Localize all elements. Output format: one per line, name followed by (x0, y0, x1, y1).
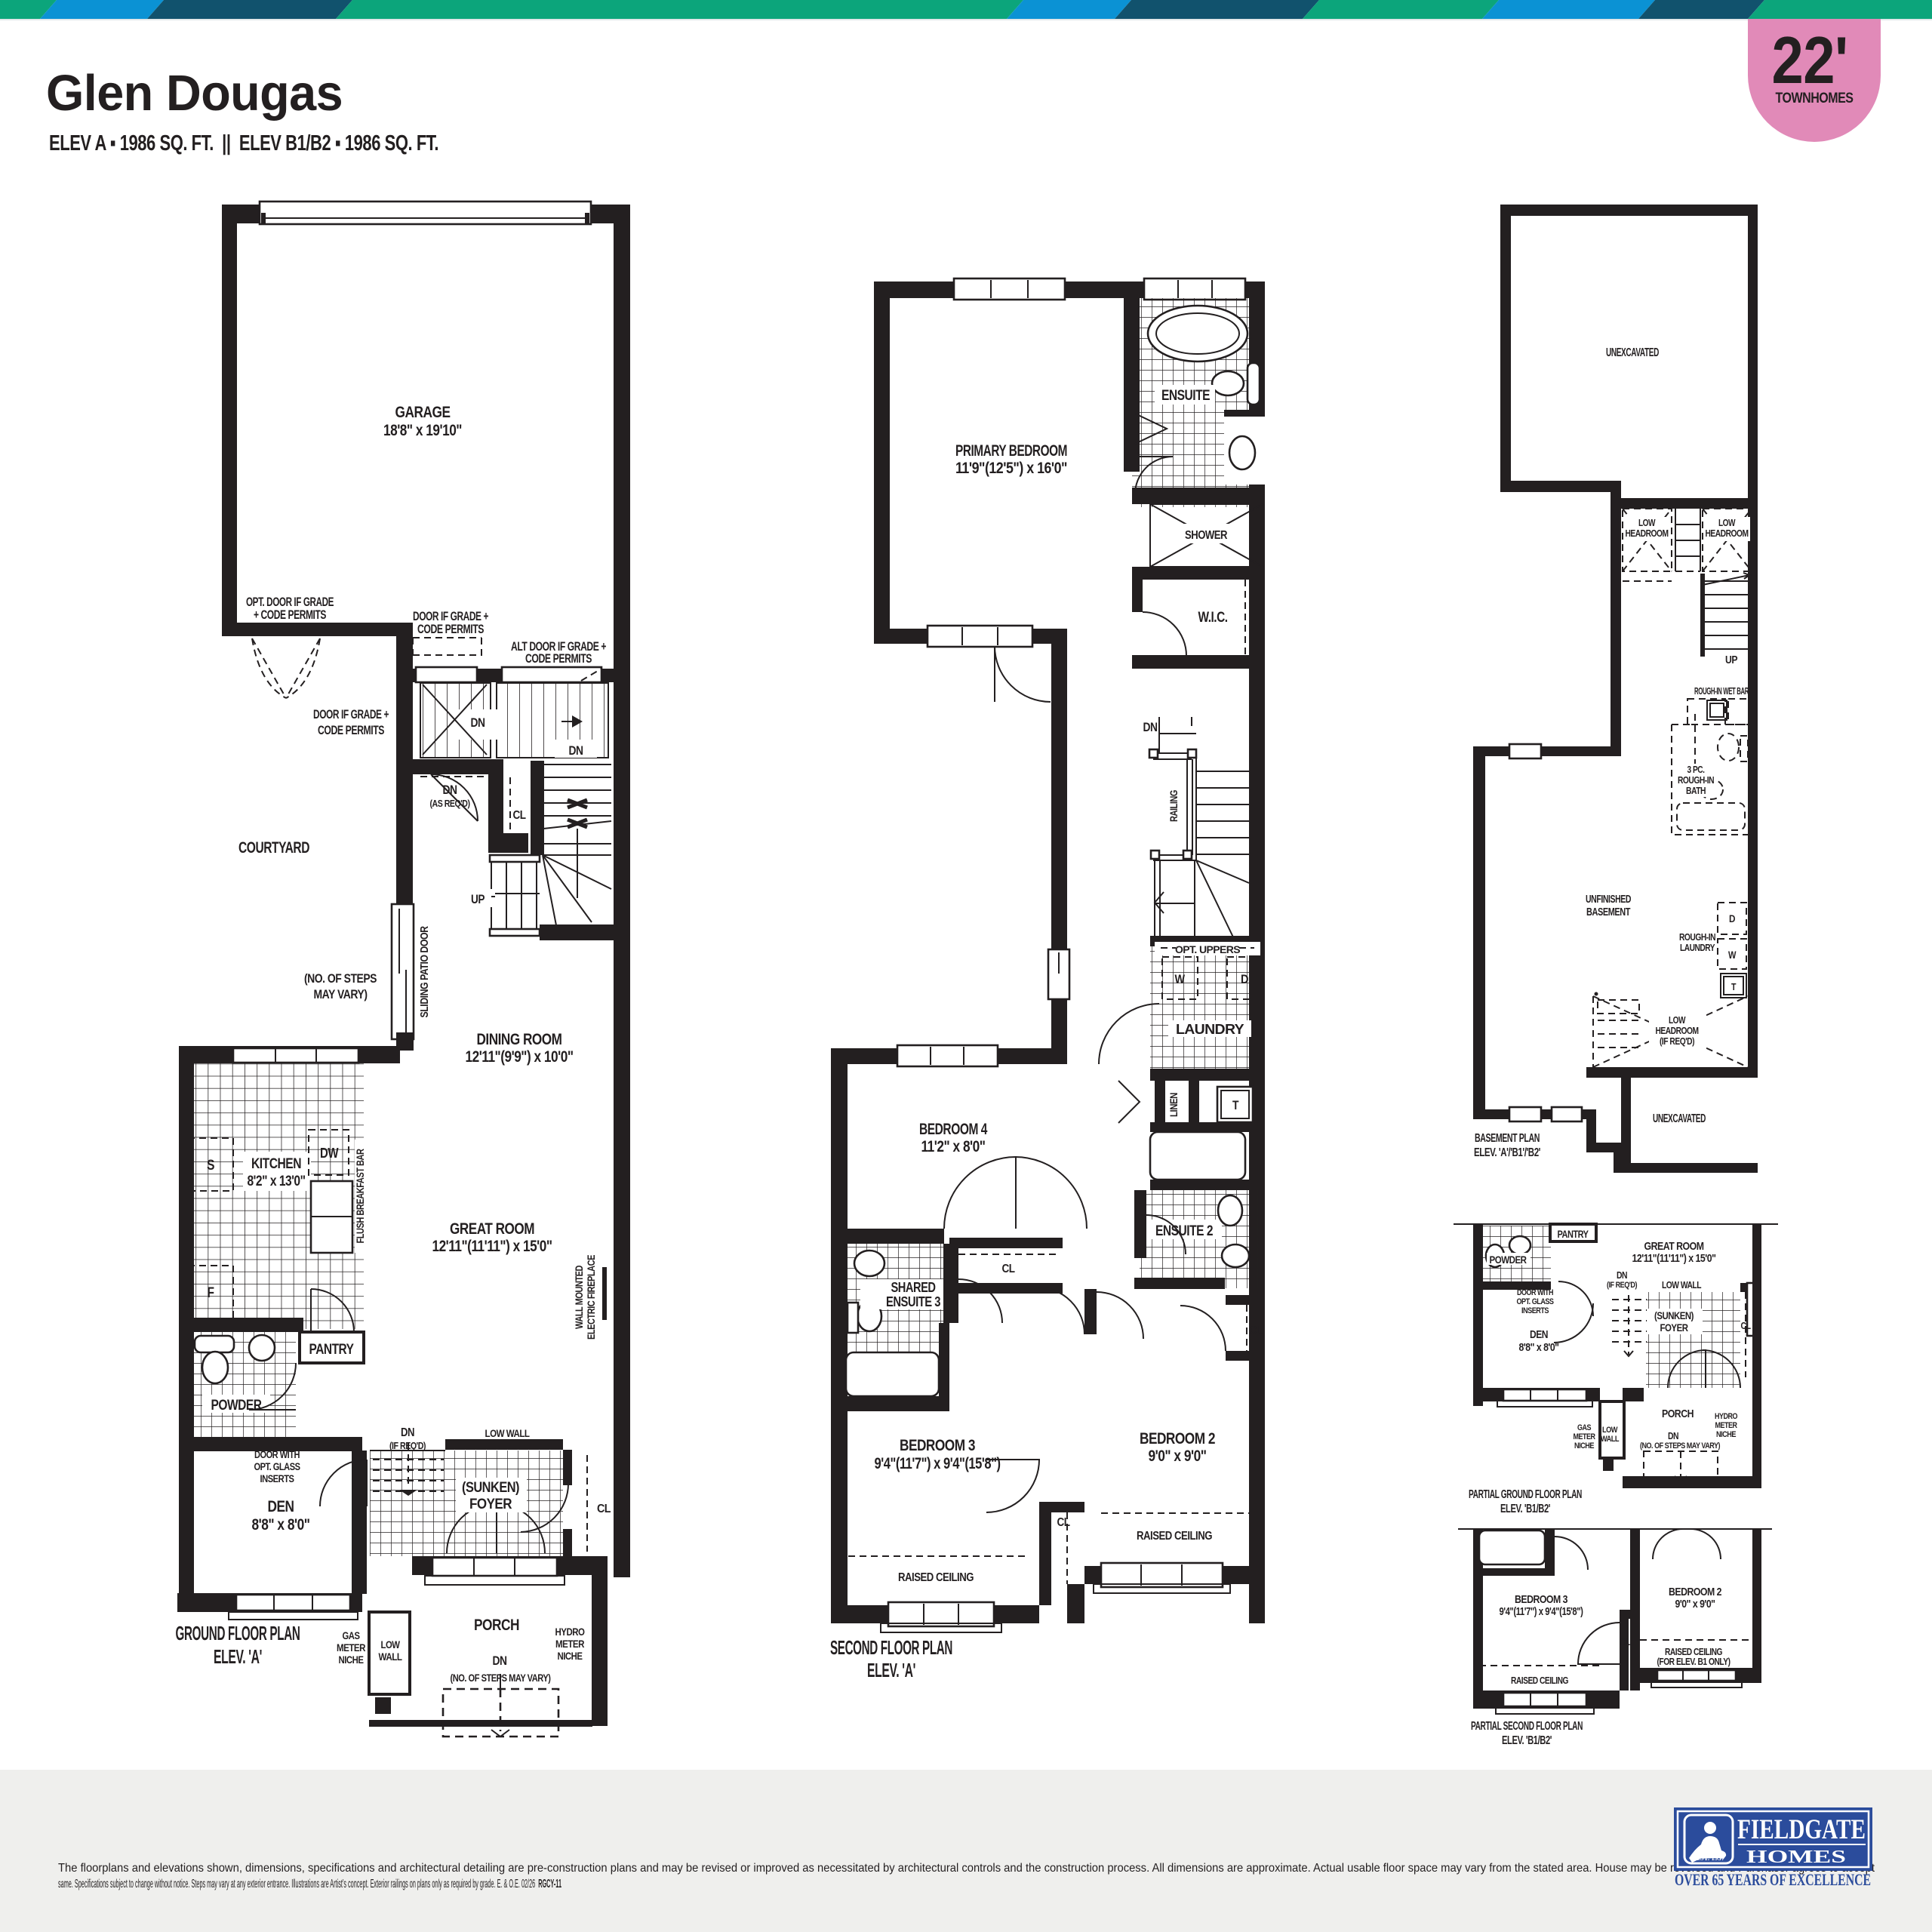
svg-text:F: F (208, 1285, 214, 1301)
svg-text:LOW WALL: LOW WALL (1662, 1280, 1702, 1291)
svg-text:DEN: DEN (268, 1498, 294, 1515)
svg-text:9'0" x 9'0": 9'0" x 9'0" (1675, 1598, 1715, 1611)
svg-text:CL: CL (513, 809, 527, 822)
svg-text:D: D (1729, 912, 1735, 924)
svg-text:BEDROOM 3: BEDROOM 3 (1515, 1593, 1567, 1606)
svg-text:RAISED CEILING: RAISED CEILING (1665, 1647, 1722, 1657)
svg-text:POWDER: POWDER (211, 1398, 263, 1414)
svg-text:HOMES: HOMES (1746, 1847, 1846, 1867)
svg-text:EST. 1957: EST. 1957 (1696, 1854, 1725, 1862)
svg-text:S: S (207, 1158, 214, 1174)
svg-text:FLUSH BREAKFAST BAR: FLUSH BREAKFAST BAR (355, 1149, 366, 1244)
svg-text:SECOND FLOOR PLAN: SECOND FLOOR PLAN (830, 1636, 952, 1659)
svg-text:UNEXCAVATED: UNEXCAVATED (1653, 1112, 1706, 1125)
svg-text:PORCH: PORCH (474, 1617, 519, 1634)
svg-text:TOWNHOMES: TOWNHOMES (1776, 91, 1854, 106)
svg-text:GAS: GAS (1577, 1423, 1591, 1432)
svg-text:BASEMENT PLAN: BASEMENT PLAN (1475, 1132, 1540, 1145)
svg-text:(FOR ELEV. B1 ONLY): (FOR ELEV. B1 ONLY) (1657, 1657, 1730, 1667)
svg-text:OPT. UPPERS: OPT. UPPERS (1175, 943, 1240, 955)
svg-text:DN: DN (1143, 720, 1158, 734)
svg-text:BEDROOM 2: BEDROOM 2 (1140, 1430, 1215, 1447)
svg-text:PORCH: PORCH (1662, 1407, 1694, 1420)
svg-text:PRIMARY BEDROOM: PRIMARY BEDROOM (955, 442, 1067, 460)
svg-text:LOW: LOW (1669, 1015, 1686, 1026)
svg-text:GREAT ROOM: GREAT ROOM (1644, 1240, 1704, 1253)
svg-text:(AS REQ'D): (AS REQ'D) (430, 798, 470, 809)
svg-text:LOW: LOW (1638, 518, 1656, 528)
svg-text:BEDROOM 4: BEDROOM 4 (919, 1121, 988, 1138)
svg-text:ROUGH-IN: ROUGH-IN (1679, 932, 1715, 943)
svg-text:BATH: BATH (1686, 786, 1706, 796)
svg-text:Glen Dougas: Glen Dougas (46, 65, 343, 122)
svg-text:RAISED CEILING: RAISED CEILING (898, 1571, 974, 1584)
svg-text:WALL: WALL (1601, 1435, 1620, 1444)
svg-text:CL: CL (1002, 1263, 1016, 1275)
svg-text:CL: CL (1250, 1324, 1263, 1337)
svg-text:CODE PERMITS: CODE PERMITS (318, 723, 384, 737)
svg-text:(SUNKEN): (SUNKEN) (1654, 1309, 1694, 1321)
svg-text:DN: DN (1617, 1270, 1627, 1281)
svg-text:ENSUITE: ENSUITE (1161, 388, 1210, 404)
svg-text:LOW: LOW (1718, 518, 1736, 528)
svg-text:9'4"(11'7") x 9'4"(15'8"): 9'4"(11'7") x 9'4"(15'8") (1500, 1605, 1583, 1618)
svg-text:same. Specifications subject t: same. Specifications subject to change w… (58, 1878, 561, 1890)
svg-text:PANTRY: PANTRY (309, 1342, 355, 1358)
svg-text:LOW: LOW (381, 1638, 401, 1651)
svg-text:DEN: DEN (1530, 1328, 1548, 1341)
svg-text:UNEXCAVATED: UNEXCAVATED (1606, 346, 1659, 359)
svg-text:NICHE: NICHE (339, 1654, 364, 1666)
svg-text:HEADROOM: HEADROOM (1626, 528, 1669, 539)
svg-text:ELEV. 'A': ELEV. 'A' (214, 1645, 262, 1668)
svg-text:3 PC.: 3 PC. (1687, 764, 1705, 775)
svg-text:ENSUITE 3: ENSUITE 3 (886, 1294, 940, 1309)
svg-text:22': 22' (1772, 23, 1848, 97)
svg-text:METER: METER (337, 1641, 365, 1654)
svg-text:8'2" x 13'0": 8'2" x 13'0" (248, 1174, 306, 1189)
svg-text:CL: CL (1057, 1516, 1071, 1529)
svg-text:The floorplans and elevations: The floorplans and elevations shown, dim… (58, 1862, 1875, 1875)
svg-text:ROUGH-IN: ROUGH-IN (1678, 775, 1714, 786)
svg-text:ELECTRIC FIREPLACE: ELECTRIC FIREPLACE (586, 1255, 597, 1340)
svg-text:GREAT ROOM: GREAT ROOM (450, 1220, 534, 1238)
svg-text:(IF REQ'D): (IF REQ'D) (1660, 1036, 1694, 1047)
svg-text:INSERTS: INSERTS (1521, 1306, 1549, 1315)
svg-text:ELEV. 'B1/B2': ELEV. 'B1/B2' (1500, 1503, 1550, 1515)
svg-text:GARAGE: GARAGE (395, 404, 451, 421)
svg-text:FOYER: FOYER (469, 1497, 512, 1512)
svg-text:DN: DN (569, 743, 583, 758)
svg-text:11'9"(12'5") x 16'0": 11'9"(12'5") x 16'0" (955, 460, 1067, 477)
svg-text:OPT. GLASS: OPT. GLASS (254, 1461, 300, 1472)
svg-text:RAISED CEILING: RAISED CEILING (1137, 1530, 1212, 1543)
svg-text:W: W (1728, 949, 1737, 961)
svg-text:CODE PERMITS: CODE PERMITS (525, 651, 592, 666)
svg-text:RAISED CEILING: RAISED CEILING (1511, 1675, 1568, 1686)
svg-text:ROUGH-IN WET BAR: ROUGH-IN WET BAR (1694, 686, 1749, 697)
svg-text:DINING ROOM: DINING ROOM (477, 1031, 562, 1048)
svg-text:METER: METER (1715, 1421, 1738, 1430)
svg-text:NICHE: NICHE (1574, 1441, 1594, 1451)
svg-text:SHOWER: SHOWER (1185, 529, 1228, 542)
svg-text:GAS: GAS (343, 1629, 360, 1641)
svg-text:CL: CL (1741, 1321, 1752, 1331)
svg-text:W.I.C.: W.I.C. (1198, 610, 1228, 626)
svg-text:DW: DW (320, 1146, 339, 1161)
svg-text:HYDRO: HYDRO (1715, 1412, 1738, 1421)
svg-text:KITCHEN: KITCHEN (251, 1156, 301, 1172)
svg-text:DN: DN (493, 1654, 507, 1668)
svg-text:COURTYARD: COURTYARD (238, 839, 309, 857)
svg-text:FIELDGATE: FIELDGATE (1737, 1814, 1866, 1845)
svg-text:T: T (1232, 1098, 1239, 1112)
svg-text:D: D (1241, 972, 1248, 986)
svg-text:(IF REQ'D): (IF REQ'D) (1607, 1281, 1638, 1290)
svg-text:12'11"(11'11") x 15'0": 12'11"(11'11") x 15'0" (1632, 1252, 1716, 1265)
svg-text:HEADROOM: HEADROOM (1656, 1026, 1699, 1036)
svg-text:UP: UP (471, 892, 485, 906)
svg-text:8'8" x 8'0": 8'8" x 8'0" (252, 1516, 310, 1534)
svg-text:LINEN: LINEN (1168, 1093, 1180, 1117)
svg-text:POWDER: POWDER (1490, 1254, 1527, 1266)
svg-text:ELEV. 'B1/B2': ELEV. 'B1/B2' (1502, 1734, 1552, 1747)
svg-text:DOOR WITH: DOOR WITH (254, 1449, 300, 1460)
svg-text:LAUNDRY: LAUNDRY (1680, 943, 1715, 953)
svg-text:LOW: LOW (1602, 1426, 1618, 1435)
svg-text:BEDROOM 2: BEDROOM 2 (1669, 1586, 1721, 1598)
svg-text:18'8" x 19'10": 18'8" x 19'10" (383, 422, 462, 439)
svg-text:ENSUITE 2: ENSUITE 2 (1155, 1223, 1213, 1239)
svg-text:HYDRO: HYDRO (555, 1626, 586, 1638)
svg-text:METER: METER (1574, 1432, 1596, 1441)
svg-text:ELEV A ▪ 1986 SQ. FT. || ELE: ELEV A ▪ 1986 SQ. FT. || ELEV B1/B2 ▪ 19… (49, 131, 438, 155)
svg-text:DOOR IF GRADE +: DOOR IF GRADE + (313, 707, 389, 721)
svg-text:DN: DN (1668, 1431, 1678, 1441)
svg-text:(NO. OF STEPS MAY VARY): (NO. OF STEPS MAY VARY) (1640, 1441, 1721, 1451)
svg-text:PANTRY: PANTRY (1558, 1229, 1589, 1240)
svg-text:DOOR WITH: DOOR WITH (1517, 1288, 1554, 1297)
svg-text:W: W (1175, 972, 1186, 986)
svg-text:PARTIAL GROUND FLOOR PLAN: PARTIAL GROUND FLOOR PLAN (1469, 1488, 1582, 1501)
svg-text:T: T (1731, 981, 1737, 992)
svg-text:UP: UP (1725, 654, 1737, 666)
svg-text:FOYER: FOYER (1660, 1321, 1688, 1334)
svg-text:LAUNDRY: LAUNDRY (1176, 1022, 1244, 1037)
svg-text:OVER 65 YEARS OF EXCELLENCE: OVER 65 YEARS OF EXCELLENCE (1675, 1870, 1871, 1889)
svg-text:OPT. GLASS: OPT. GLASS (1517, 1297, 1554, 1306)
svg-text:WALL MOUNTED: WALL MOUNTED (574, 1265, 585, 1329)
svg-text:UNFINISHED: UNFINISHED (1586, 893, 1632, 906)
svg-text:12'11"(9'9") x 10'0": 12'11"(9'9") x 10'0" (466, 1048, 574, 1066)
svg-text:DN: DN (401, 1426, 414, 1439)
svg-text:9'0" x 9'0": 9'0" x 9'0" (1149, 1447, 1207, 1465)
svg-text:HEADROOM: HEADROOM (1706, 528, 1749, 539)
svg-text:11'2" x 8'0": 11'2" x 8'0" (921, 1138, 986, 1155)
svg-text:8'8" x 8'0": 8'8" x 8'0" (1519, 1341, 1559, 1354)
svg-text:ELEV. 'A': ELEV. 'A' (867, 1659, 915, 1681)
svg-text:DN: DN (443, 783, 457, 797)
svg-text:SLIDING PATIO DOOR: SLIDING PATIO DOOR (418, 926, 431, 1018)
svg-text:PARTIAL SECOND FLOOR PLAN: PARTIAL SECOND FLOOR PLAN (1471, 1720, 1583, 1733)
svg-text:SHARED: SHARED (891, 1280, 936, 1295)
svg-text:CL: CL (597, 1503, 611, 1515)
svg-text:BEDROOM 3: BEDROOM 3 (900, 1437, 975, 1454)
svg-text:LOW WALL: LOW WALL (485, 1427, 531, 1439)
svg-text:12'11"(11'11") x 15'0": 12'11"(11'11") x 15'0" (432, 1238, 552, 1255)
svg-text:NICHE: NICHE (1716, 1430, 1736, 1439)
svg-text:CODE PERMITS: CODE PERMITS (417, 622, 484, 636)
svg-text:ELEV. 'A'/'B1'/'B2': ELEV. 'A'/'B1'/'B2' (1474, 1146, 1540, 1159)
svg-text:NICHE: NICHE (558, 1650, 583, 1662)
svg-text:RAILING: RAILING (1168, 790, 1180, 822)
svg-text:INSERTS: INSERTS (260, 1473, 294, 1484)
svg-text:(SUNKEN): (SUNKEN) (462, 1480, 519, 1496)
svg-text:+ CODE PERMITS: + CODE PERMITS (254, 608, 326, 622)
svg-text:MAY VARY): MAY VARY) (314, 987, 368, 1001)
svg-text:DN: DN (471, 715, 485, 730)
svg-text:WALL: WALL (379, 1651, 403, 1663)
svg-text:METER: METER (555, 1638, 584, 1650)
svg-text:(NO. OF STEPS: (NO. OF STEPS (304, 971, 377, 986)
svg-text:9'4"(11'7") x 9'4"(15'8"): 9'4"(11'7") x 9'4"(15'8") (875, 1455, 1001, 1472)
svg-text:CL: CL (1620, 1637, 1631, 1647)
svg-text:BASEMENT: BASEMENT (1586, 906, 1630, 918)
svg-text:GROUND FLOOR PLAN: GROUND FLOOR PLAN (176, 1622, 300, 1644)
